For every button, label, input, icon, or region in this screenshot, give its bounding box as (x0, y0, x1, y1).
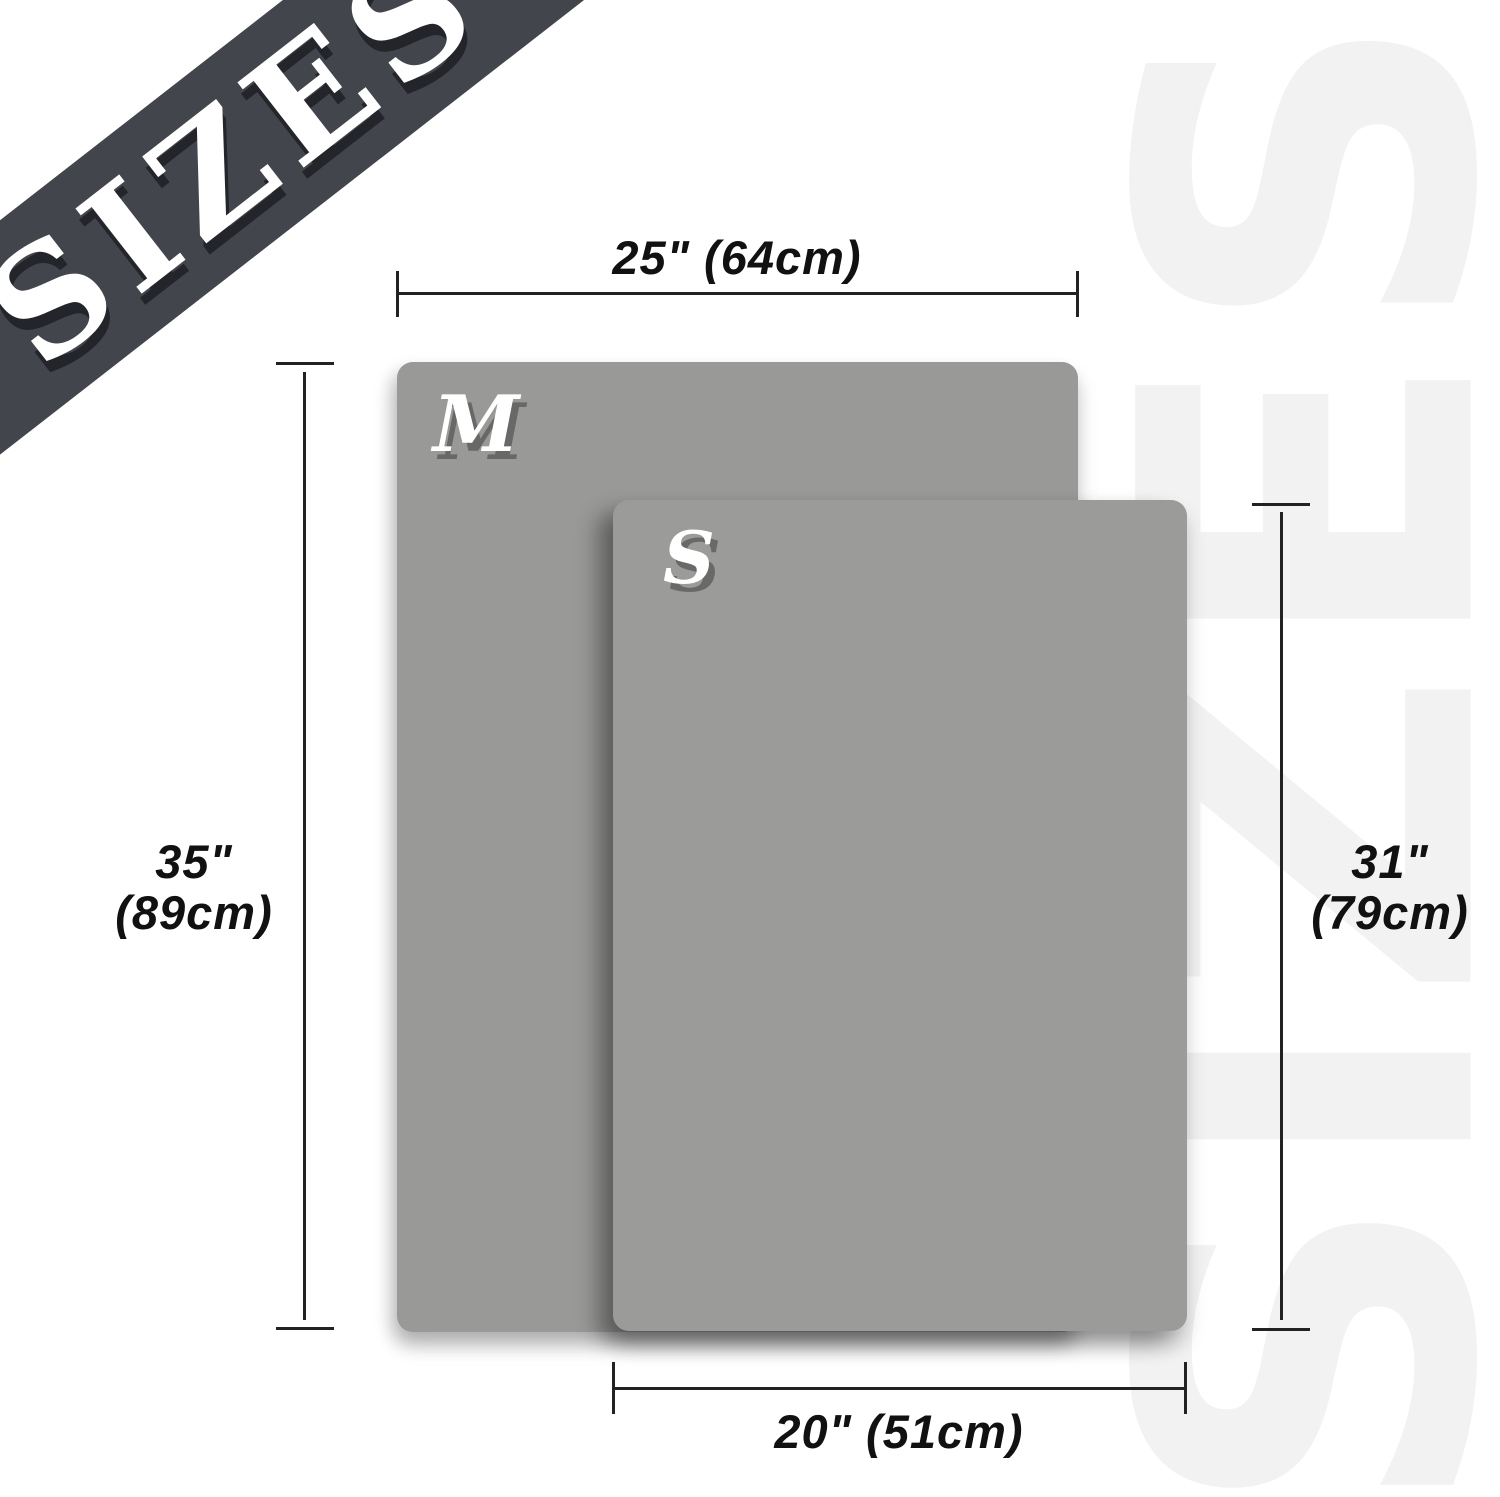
tick-mark (1184, 1362, 1187, 1414)
dim-label-m-height-cm: (89cm) (74, 887, 314, 938)
tick-mark (1252, 503, 1310, 506)
dim-label-m-width: 25" (64cm) (497, 232, 977, 283)
size-letter-m: M (433, 386, 519, 464)
dim-label-m-height: 35" (89cm) (74, 836, 314, 938)
dim-label-m-height-inches: 35" (74, 836, 314, 887)
tick-mark (1252, 1328, 1310, 1331)
tick-mark (276, 362, 334, 365)
mat-size-s: S (613, 500, 1187, 1331)
dimension-line-s-width (613, 1387, 1186, 1390)
dim-label-s-width: 20" (51cm) (659, 1406, 1139, 1457)
tick-mark (1076, 271, 1079, 317)
dim-label-s-height-cm: (79cm) (1270, 887, 1500, 938)
tick-mark (612, 1362, 615, 1414)
banner-label: SIZES (0, 0, 507, 389)
dim-label-s-height-inches: 31" (1270, 836, 1500, 887)
dimension-line-m-width (397, 292, 1078, 295)
tick-mark (276, 1327, 334, 1330)
tick-mark (396, 271, 399, 317)
size-letter-s: S (663, 522, 715, 594)
dim-label-s-height: 31" (79cm) (1270, 836, 1500, 938)
size-diagram: SIZES SIZES M S 25" (64cm) 35" (89cm) 31… (0, 0, 1500, 1497)
